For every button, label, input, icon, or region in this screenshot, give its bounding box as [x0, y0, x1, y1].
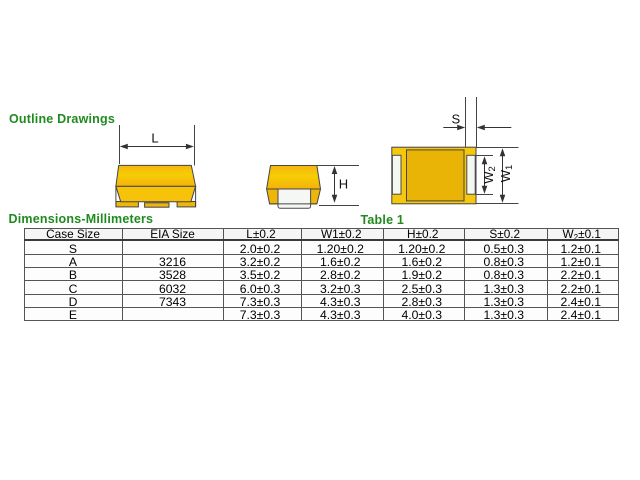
svg-text:W2: W2: [481, 166, 498, 184]
svg-text:W1: W1: [498, 165, 515, 183]
svg-text:S: S: [451, 111, 460, 126]
svg-text:H: H: [339, 176, 348, 191]
svg-text:L: L: [151, 131, 158, 146]
